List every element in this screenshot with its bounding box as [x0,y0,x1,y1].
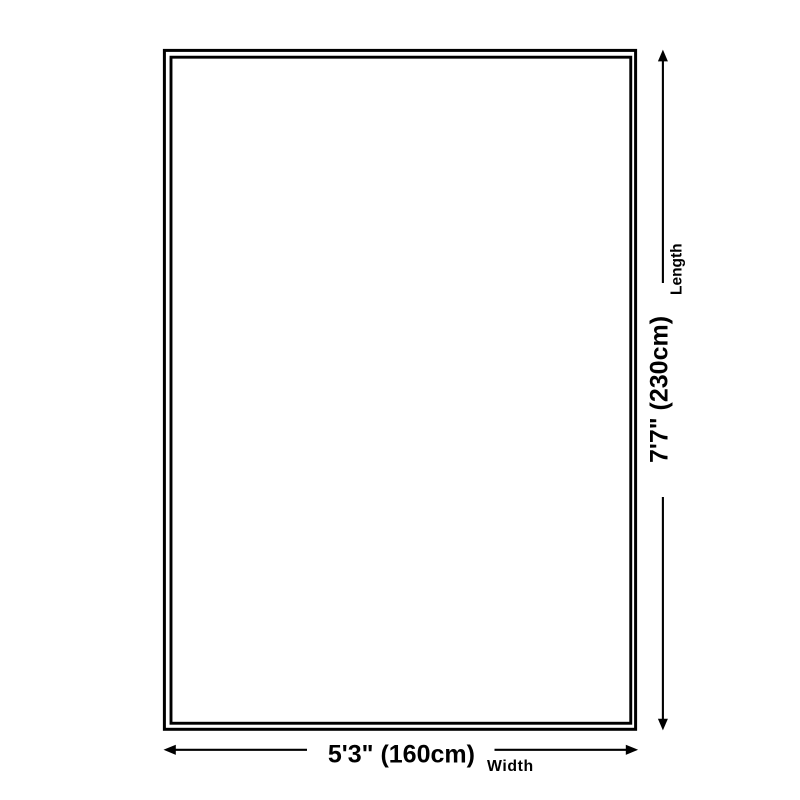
svg-text:7'7" (230cm): 7'7" (230cm) [646,316,674,463]
svg-text:Width: Width [487,758,534,775]
svg-text:5'3" (160cm): 5'3" (160cm) [328,740,475,768]
svg-text:Length: Length [668,243,685,295]
